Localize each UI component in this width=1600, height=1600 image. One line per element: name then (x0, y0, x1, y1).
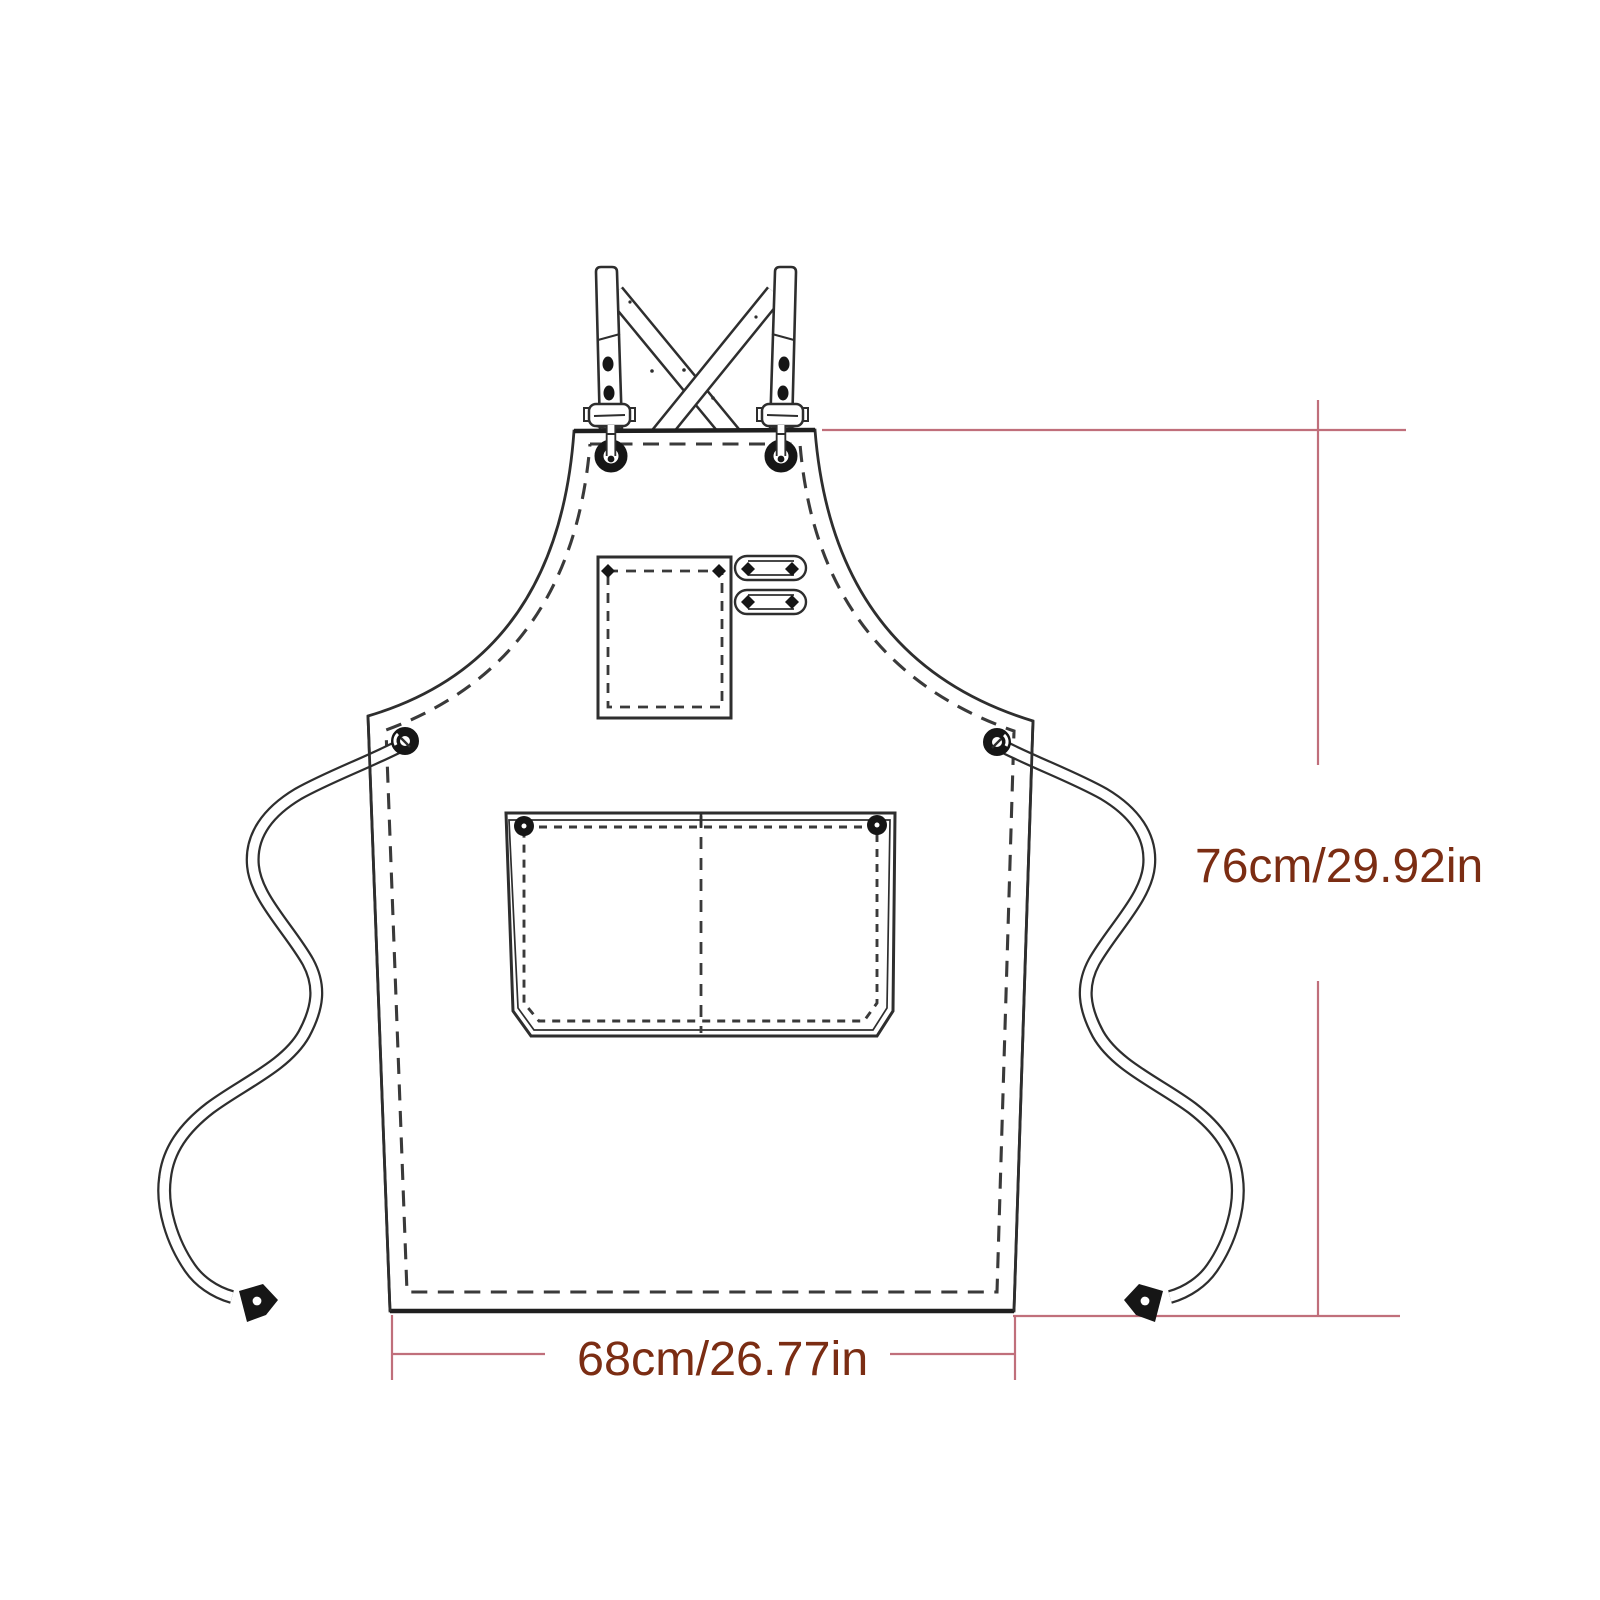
svg-text:68cm/26.77in: 68cm/26.77in (577, 1332, 868, 1386)
svg-text:76cm/29.92in: 76cm/29.92in (1195, 840, 1483, 893)
